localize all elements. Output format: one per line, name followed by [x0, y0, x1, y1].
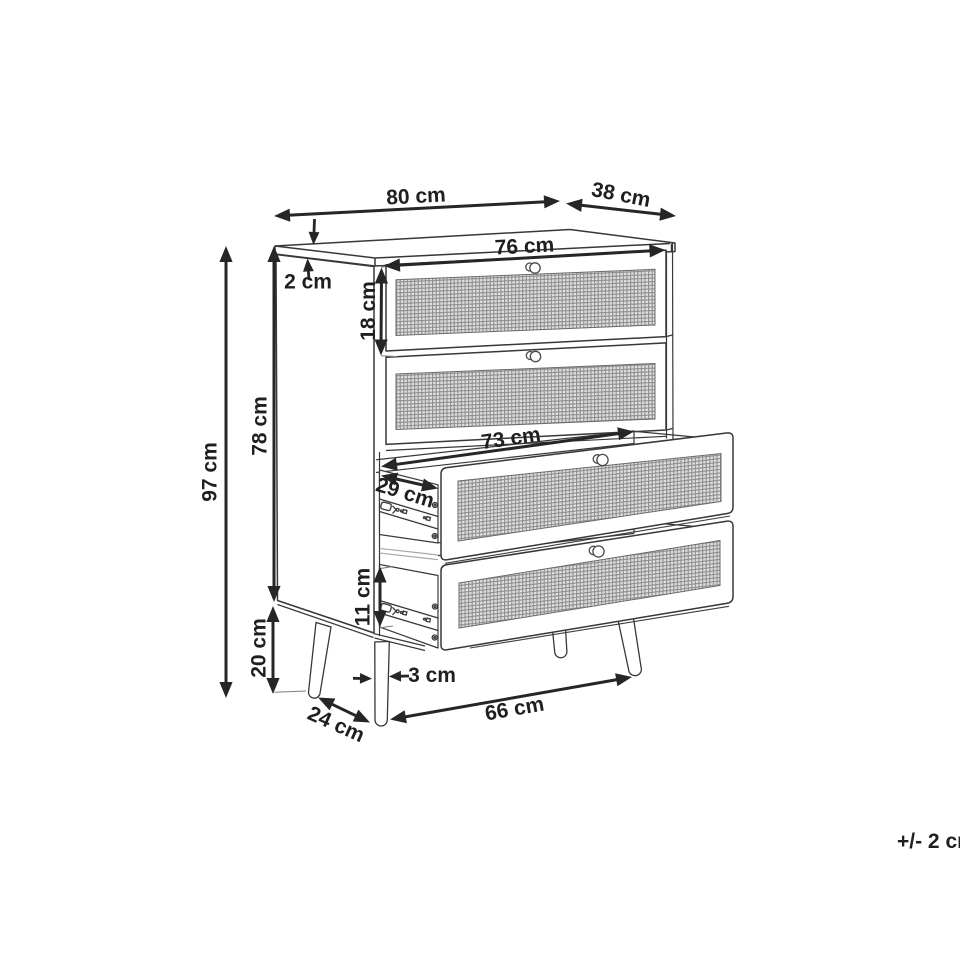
svg-text:76 cm: 76 cm — [494, 233, 555, 259]
svg-text:18 cm: 18 cm — [357, 281, 380, 341]
svg-text:97 cm: 97 cm — [199, 442, 222, 502]
svg-text:+/- 2 cm: +/- 2 cm — [897, 830, 960, 853]
svg-text:2 cm: 2 cm — [284, 271, 332, 294]
svg-text:11 cm: 11 cm — [352, 568, 375, 626]
svg-text:78 cm: 78 cm — [249, 396, 272, 456]
svg-text:20 cm: 20 cm — [248, 618, 271, 678]
svg-text:3 cm: 3 cm — [408, 664, 456, 687]
svg-text:80 cm: 80 cm — [386, 183, 447, 209]
